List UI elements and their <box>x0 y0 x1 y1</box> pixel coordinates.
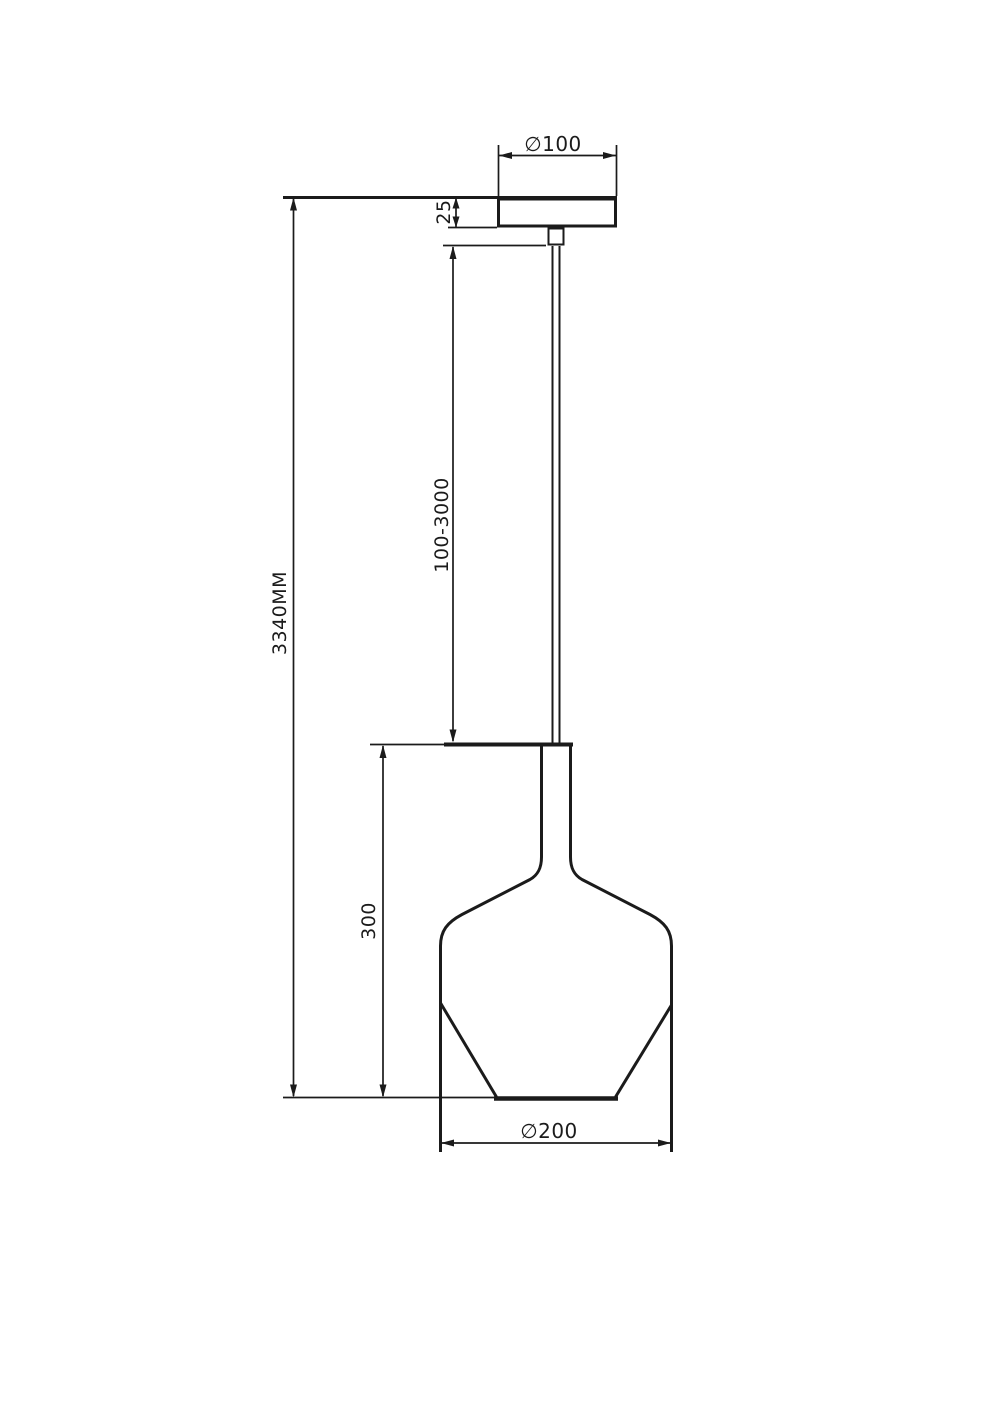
canopy-height-label: 25 <box>433 199 455 224</box>
dim-canopy-height: 25 <box>433 198 497 228</box>
fixture-outline <box>283 198 672 1153</box>
shade-profile-right <box>571 745 672 1152</box>
dim-overall-height: 3340MM <box>269 198 297 1098</box>
shade-height-label: 300 <box>358 902 380 940</box>
arrow-up-icon <box>380 745 387 758</box>
shade-bottom-taper-right <box>616 1005 672 1097</box>
arrow-up-icon <box>450 246 457 259</box>
suspension-length-label: 100-3000 <box>431 477 453 572</box>
dim-canopy-diameter: ∅100 <box>499 132 617 196</box>
arrow-down-icon <box>450 730 457 743</box>
dim-suspension-length: 100-3000 <box>431 246 546 743</box>
arrow-right-icon <box>658 1140 671 1147</box>
shade-profile-left <box>441 745 542 1152</box>
arrow-down-icon <box>290 1085 297 1098</box>
canopy-diameter-label: ∅100 <box>524 132 582 156</box>
overall-height-label: 3340MM <box>269 571 291 655</box>
cable-connector <box>549 229 564 245</box>
dim-shade-diameter: ∅200 <box>283 1098 671 1147</box>
arrow-left-icon <box>441 1140 454 1147</box>
arrow-right-icon <box>603 152 616 159</box>
shade-bottom-taper-left <box>441 1003 497 1097</box>
shade-diameter-label: ∅200 <box>520 1119 578 1143</box>
arrow-left-icon <box>499 152 512 159</box>
dim-shade-height: 300 <box>358 745 446 1098</box>
pendant-lamp-dimension-drawing: ∅100 25 100-3000 3340MM <box>0 0 992 1403</box>
arrow-down-icon <box>380 1085 387 1098</box>
arrow-up-icon <box>290 198 297 211</box>
canopy <box>499 199 616 226</box>
